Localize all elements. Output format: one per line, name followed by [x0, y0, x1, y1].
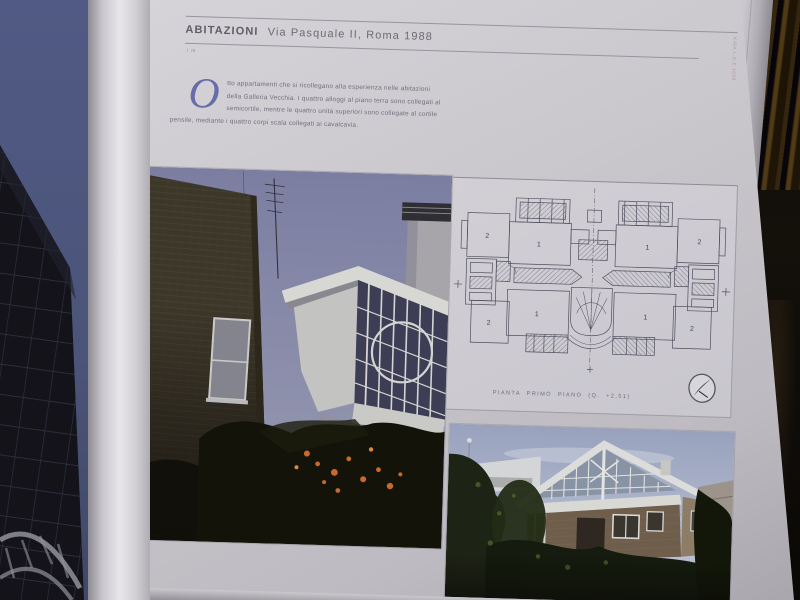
svg-text:2: 2 [690, 326, 694, 333]
plan-caption: PIANTA PRIMO PIANO (Q. +2,51) [493, 390, 631, 400]
svg-text:1: 1 [535, 311, 539, 318]
svg-text:2: 2 [485, 233, 489, 240]
main-photo [136, 167, 452, 549]
north-arrow-icon [684, 370, 719, 407]
svg-text:1: 1 [645, 245, 649, 252]
bottom-photo [445, 424, 735, 600]
svg-text:1: 1 [643, 314, 647, 321]
wall-window [206, 318, 253, 405]
intro-paragraph: O tto appartamenti che si ricollegano al… [170, 76, 467, 135]
dropcap-letter: O [188, 79, 220, 111]
svg-text:2: 2 [697, 239, 701, 246]
edge-vertical-text: KIRA L.C.E 1000 [731, 37, 737, 81]
section-label: ABITAZIONI [185, 24, 258, 38]
page-title: Via Pasquale II, Roma 1988 [267, 26, 433, 43]
photographed-book-page: ABITAZIONI Via Pasquale II, Roma 1988 i … [0, 0, 800, 600]
header-footnote: i m [187, 48, 197, 54]
floor-plan-panel: 2 1 1 2 1 2 1 2 PIANTA PRIMO PIANO (Q. +… [446, 177, 738, 418]
svg-text:2: 2 [487, 320, 491, 327]
book-gutter [88, 0, 154, 600]
floor-plan-drawing: 2 1 1 2 1 2 1 2 [447, 178, 737, 386]
svg-text:1: 1 [537, 241, 541, 248]
